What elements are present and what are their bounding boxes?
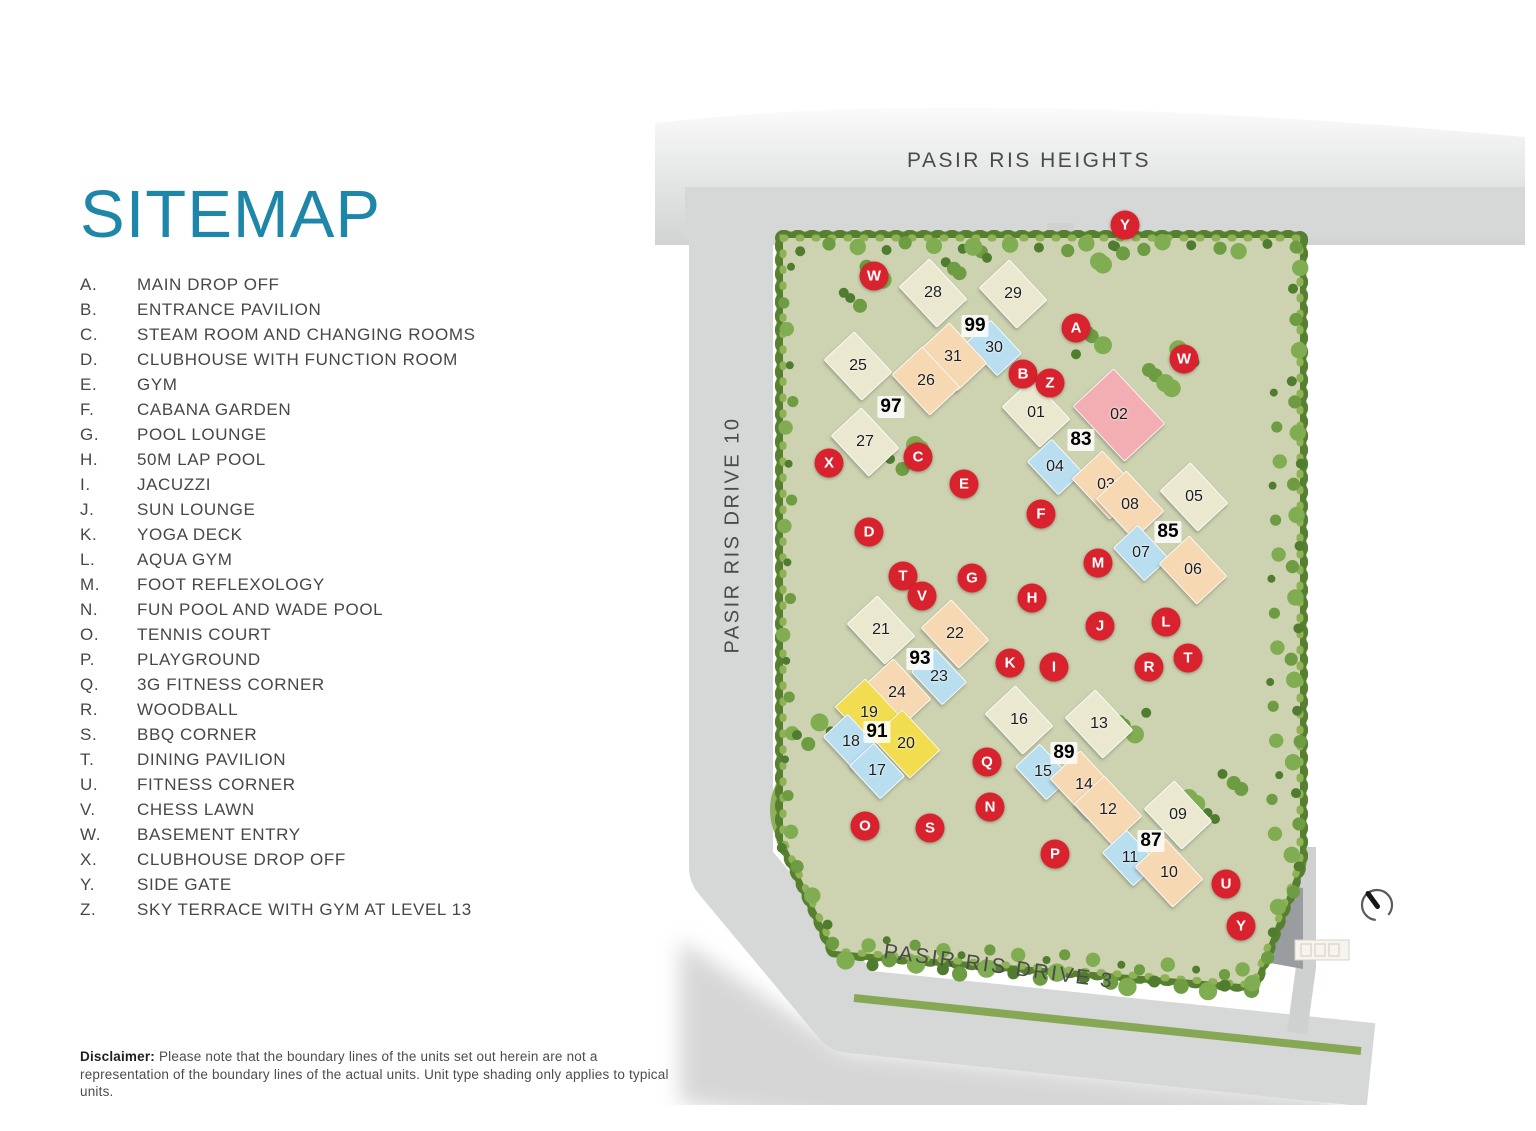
legend-label: FITNESS CORNER [137,775,640,795]
legend-key: E. [80,375,137,395]
legend-key: P. [80,650,137,670]
legend-key: F. [80,400,137,420]
legend-key: L. [80,550,137,570]
legend-key: J. [80,500,137,520]
legend-key: C. [80,325,137,345]
legend-label: BASEMENT ENTRY [137,825,640,845]
legend-item-c: C.STEAM ROOM AND CHANGING ROOMS [80,322,640,347]
legend-label: POOL LOUNGE [137,425,640,445]
legend-label: ENTRANCE PAVILION [137,300,640,320]
legend-item-k: K.YOGA DECK [80,522,640,547]
legend-key: G. [80,425,137,445]
legend-key: Q. [80,675,137,695]
site-map: 2829303125262701020403080507062122232419… [655,95,1525,1105]
legend-item-d: D.CLUBHOUSE WITH FUNCTION ROOM [80,347,640,372]
hedge [783,238,1300,985]
legend-item-t: T.DINING PAVILION [80,747,640,772]
legend-label: CLUBHOUSE WITH FUNCTION ROOM [137,350,640,370]
legend-key: T. [80,750,137,770]
legend-item-b: B.ENTRANCE PAVILION [80,297,640,322]
legend-label: CLUBHOUSE DROP OFF [137,850,640,870]
legend-item-e: E.GYM [80,372,640,397]
legend-key: B. [80,300,137,320]
legend-key: W. [80,825,137,845]
legend-label: 3G FITNESS CORNER [137,675,640,695]
legend-item-p: P.PLAYGROUND [80,647,640,672]
legend-key: R. [80,700,137,720]
legend-key: U. [80,775,137,795]
legend-key: V. [80,800,137,820]
legend-item-q: Q.3G FITNESS CORNER [80,672,640,697]
legend-key: H. [80,450,137,470]
legend-key: K. [80,525,137,545]
legend-label: PLAYGROUND [137,650,640,670]
legend-label: DINING PAVILION [137,750,640,770]
disclaimer-text: Please note that the boundary lines of t… [80,1049,669,1099]
legend-key: M. [80,575,137,595]
legend-key: Y. [80,875,137,895]
legend-label: SUN LOUNGE [137,500,640,520]
legend-label: 50M LAP POOL [137,450,640,470]
legend-label: SKY TERRACE WITH GYM AT LEVEL 13 [137,900,640,920]
legend-label: MAIN DROP OFF [137,275,640,295]
legend-label: YOGA DECK [137,525,640,545]
legend-label: STEAM ROOM AND CHANGING ROOMS [137,325,640,345]
disclaimer-label: Disclaimer: [80,1049,155,1064]
legend-key: X. [80,850,137,870]
disclaimer: Disclaimer: Please note that the boundar… [80,1048,680,1101]
page-title: SITEMAP [80,176,381,253]
legend-label: WOODBALL [137,700,640,720]
legend-label: FUN POOL AND WADE POOL [137,600,640,620]
legend-label: CABANA GARDEN [137,400,640,420]
legend-item-x: X.CLUBHOUSE DROP OFF [80,847,640,872]
legend-key: A. [80,275,137,295]
legend-item-n: N.FUN POOL AND WADE POOL [80,597,640,622]
legend-item-o: O.TENNIS COURT [80,622,640,647]
legend-item-z: Z.SKY TERRACE WITH GYM AT LEVEL 13 [80,897,640,922]
north-arrow-icon [1361,889,1394,922]
legend-item-m: M.FOOT REFLEXOLOGY [80,572,640,597]
legend-label: TENNIS COURT [137,625,640,645]
legend-key: S. [80,725,137,745]
legend-label: AQUA GYM [137,550,640,570]
legend-key: I. [80,475,137,495]
legend-key: D. [80,350,137,370]
pedestrian-crossing [1295,940,1349,960]
road-label-pasir-ris-heights: PASIR RIS HEIGHTS [907,149,1151,173]
legend-item-w: W.BASEMENT ENTRY [80,822,640,847]
legend-item-j: J.SUN LOUNGE [80,497,640,522]
legend-item-g: G.POOL LOUNGE [80,422,640,447]
legend-item-l: L.AQUA GYM [80,547,640,572]
legend-label: BBQ CORNER [137,725,640,745]
legend-key: N. [80,600,137,620]
legend-item-s: S.BBQ CORNER [80,722,640,747]
legend-item-r: R.WOODBALL [80,697,640,722]
legend-label: CHESS LAWN [137,800,640,820]
legend-item-v: V.CHESS LAWN [80,797,640,822]
legend-item-h: H.50M LAP POOL [80,447,640,472]
legend-item-y: Y.SIDE GATE [80,872,640,897]
legend-list: A.MAIN DROP OFFB.ENTRANCE PAVILIONC.STEA… [80,272,640,922]
legend-item-u: U.FITNESS CORNER [80,772,640,797]
legend-item-a: A.MAIN DROP OFF [80,272,640,297]
legend-label: GYM [137,375,640,395]
legend-item-i: I.JACUZZI [80,472,640,497]
legend-key: Z. [80,900,137,920]
site-map-base [655,95,1525,1105]
legend-label: FOOT REFLEXOLOGY [137,575,640,595]
legend-item-f: F.CABANA GARDEN [80,397,640,422]
road-label-pasir-ris-drive-10: PASIR RIS DRIVE 10 [722,417,745,654]
legend-label: SIDE GATE [137,875,640,895]
legend-key: O. [80,625,137,645]
legend-label: JACUZZI [137,475,640,495]
